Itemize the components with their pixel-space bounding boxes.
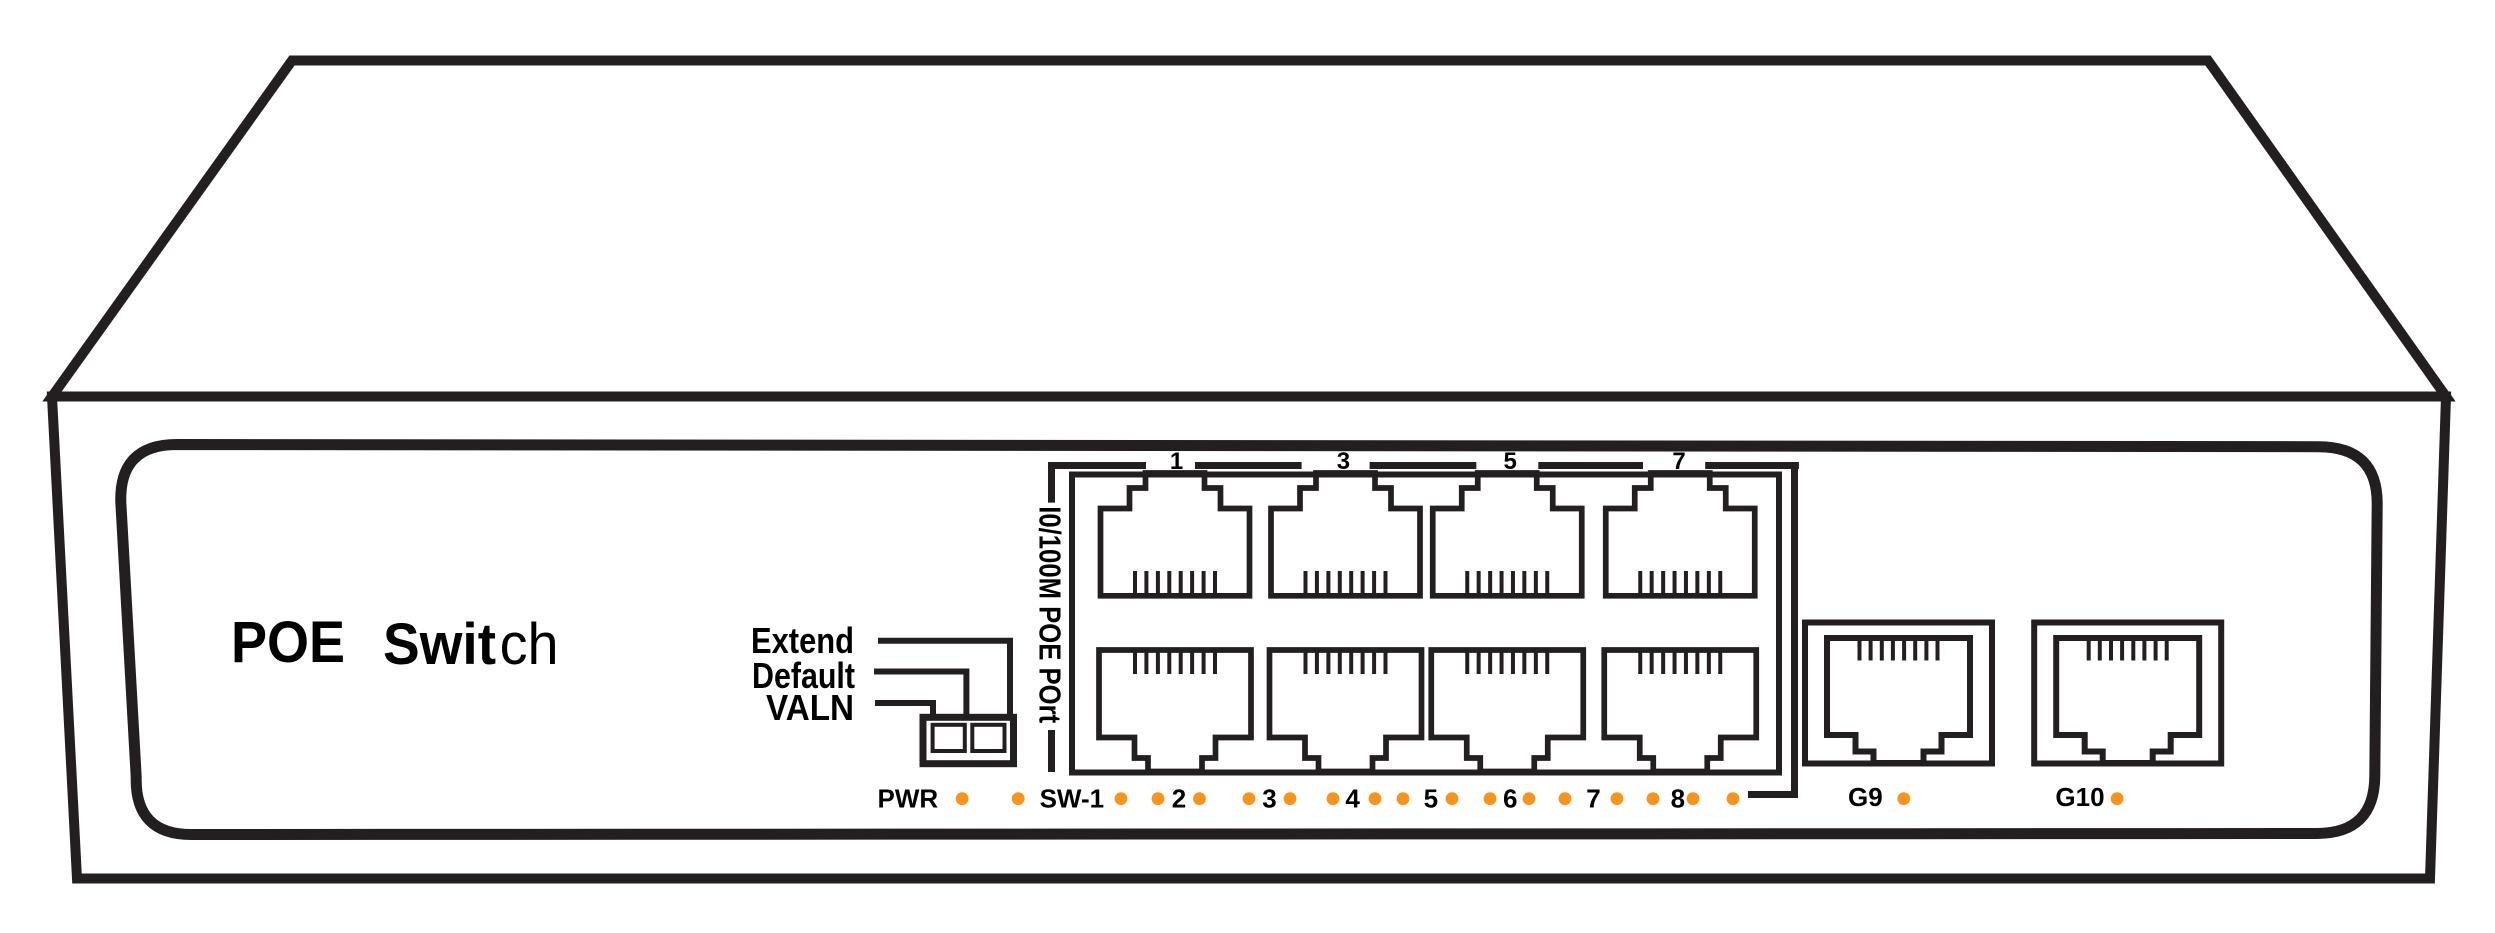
svg-text:G9: G9 xyxy=(1848,782,1883,812)
svg-text:4: 4 xyxy=(1345,784,1360,814)
svg-text:Swit: Swit xyxy=(383,612,496,677)
svg-text:POE: POE xyxy=(231,610,345,675)
svg-text:8: 8 xyxy=(1671,784,1685,814)
svg-text:5: 5 xyxy=(1424,784,1438,814)
svg-text:PWR: PWR xyxy=(878,784,939,814)
svg-text:2: 2 xyxy=(1172,784,1186,814)
svg-text:ch: ch xyxy=(500,612,559,677)
svg-text:7: 7 xyxy=(1586,784,1600,814)
svg-text:3: 3 xyxy=(1262,784,1276,814)
svg-text:VALN: VALN xyxy=(766,687,854,728)
svg-text:6: 6 xyxy=(1503,784,1517,814)
svg-text:I0/100M POE POrt: I0/100M POE POrt xyxy=(1033,506,1068,723)
svg-text:G10: G10 xyxy=(2055,782,2104,812)
svg-text:SW-1: SW-1 xyxy=(1040,784,1104,814)
